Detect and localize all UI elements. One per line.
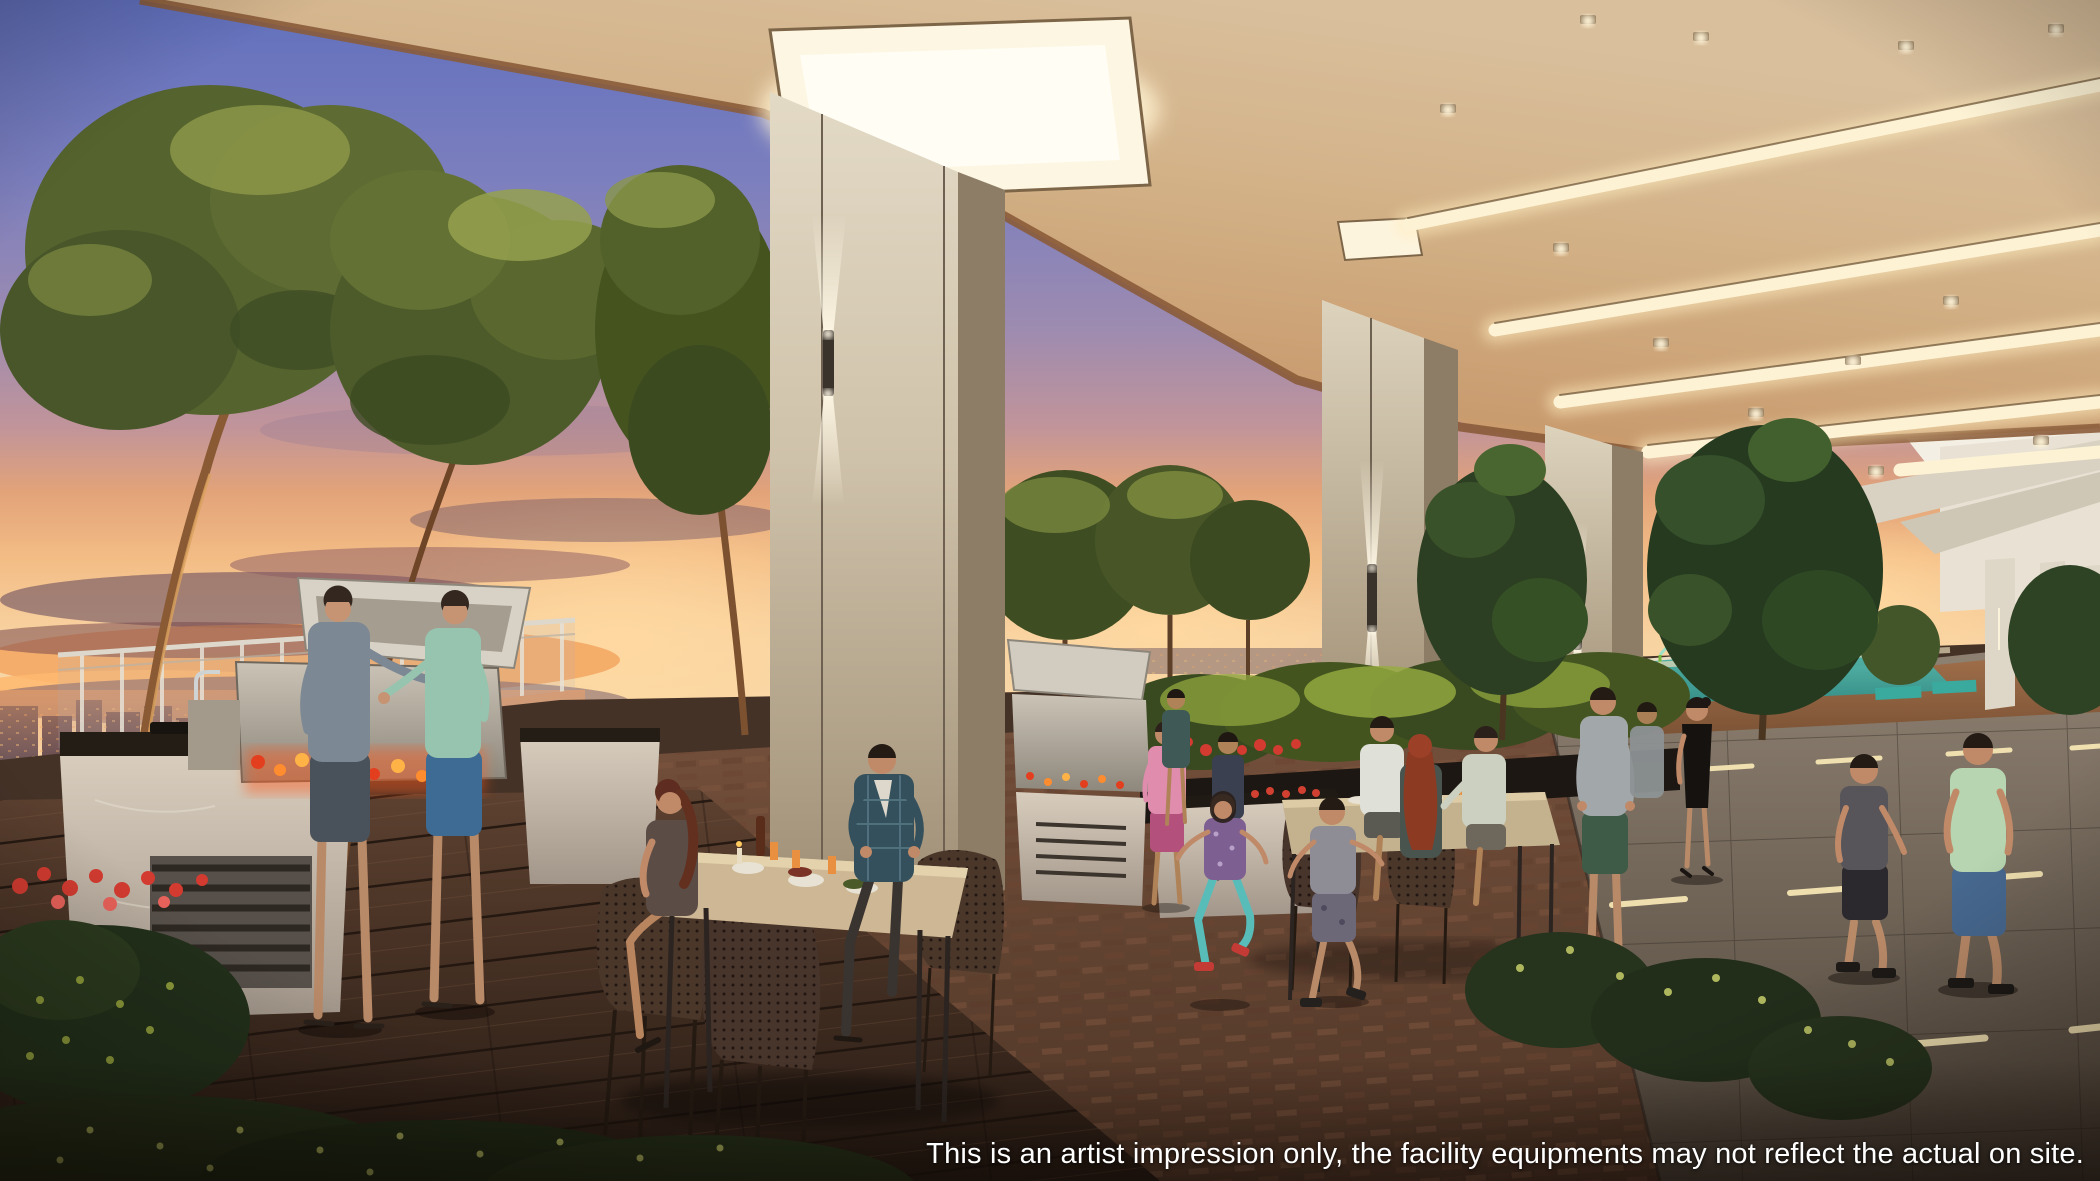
vignette xyxy=(0,0,2100,1181)
artist-impression-render: This is an artist impression only, the f… xyxy=(0,0,2100,1181)
scene-canvas xyxy=(0,0,2100,1181)
caption-disclaimer: This is an artist impression only, the f… xyxy=(926,1138,2084,1171)
